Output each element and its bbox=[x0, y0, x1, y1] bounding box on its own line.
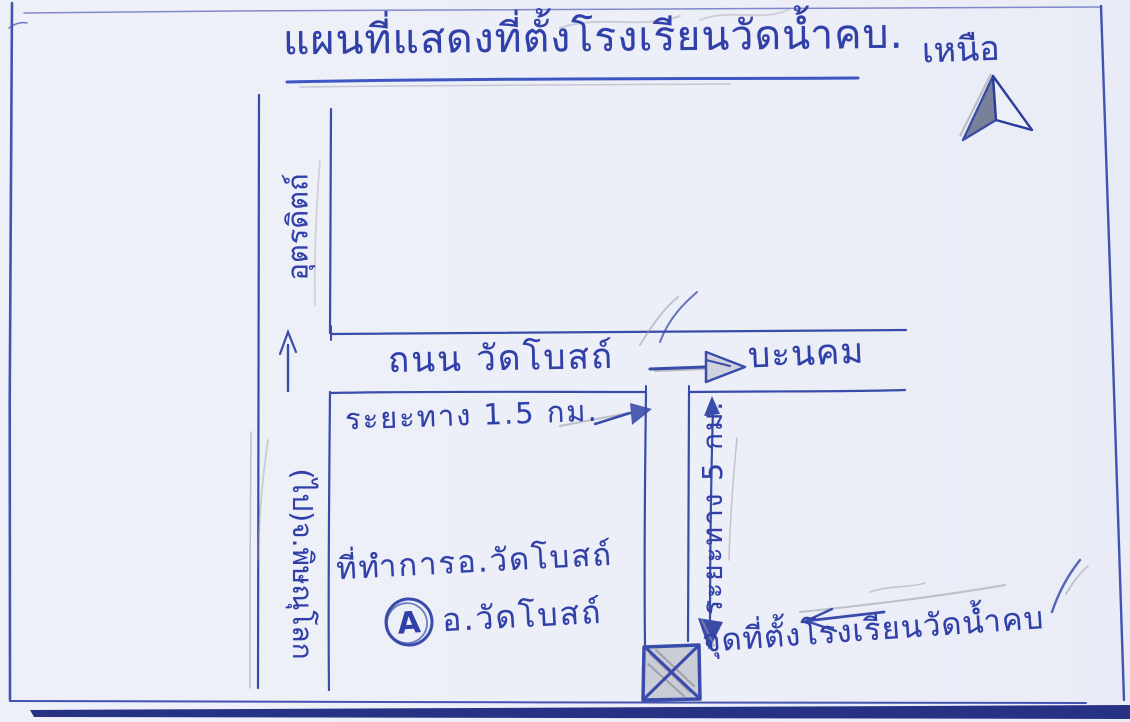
highway-left-line bbox=[258, 95, 259, 688]
highway-left-line-echo bbox=[250, 432, 251, 688]
main-road-name-label: ถนน วัดโบสถ์ bbox=[388, 339, 615, 380]
highway-right-line-upper bbox=[330, 109, 331, 333]
district-office-label: อ.วัดโบสถ์ bbox=[441, 596, 603, 638]
compass-label: เหนือ bbox=[921, 32, 1000, 70]
title-underline bbox=[287, 78, 858, 87]
main-road-bottom-line-right bbox=[690, 390, 905, 392]
highway-north-destination-label: อุตรดิตถ์ bbox=[283, 145, 327, 310]
border-left bbox=[10, 3, 12, 700]
district-symbol-char: A bbox=[396, 605, 422, 642]
map-title: แผนที่แสดงที่ตั้งโรงเรียนวัดน้ำคบ. bbox=[283, 13, 904, 63]
map-canvas: A แผนที่แสดงที่ตั้งโรงเรียนวัดน้ำคบ. เหน… bbox=[0, 0, 1130, 722]
main-road-east-destination-label: บะนคม bbox=[747, 333, 865, 375]
school-road bbox=[645, 393, 689, 646]
border-bottom bbox=[10, 701, 1086, 703]
school-road-right-line bbox=[688, 393, 689, 641]
highway-south-destination-label: (ไป)จ.พิษณุโลก bbox=[269, 439, 317, 689]
school-road-distance-label: ระยะทาง 5 กม. bbox=[698, 415, 742, 615]
border-top bbox=[24, 7, 1102, 13]
crossed-box-icon bbox=[643, 645, 700, 700]
north-arrow-icon bbox=[960, 74, 1032, 140]
school-road-left-line bbox=[645, 393, 646, 646]
highway-right-line-lower bbox=[329, 392, 330, 690]
bottom-scan-bar bbox=[30, 705, 1130, 719]
pencil-marks bbox=[258, 10, 1088, 612]
up-arrow-icon bbox=[280, 332, 296, 391]
border-right bbox=[1101, 6, 1124, 700]
right-arrow-east-icon bbox=[650, 352, 745, 383]
circled-A-icon: A bbox=[384, 597, 433, 646]
